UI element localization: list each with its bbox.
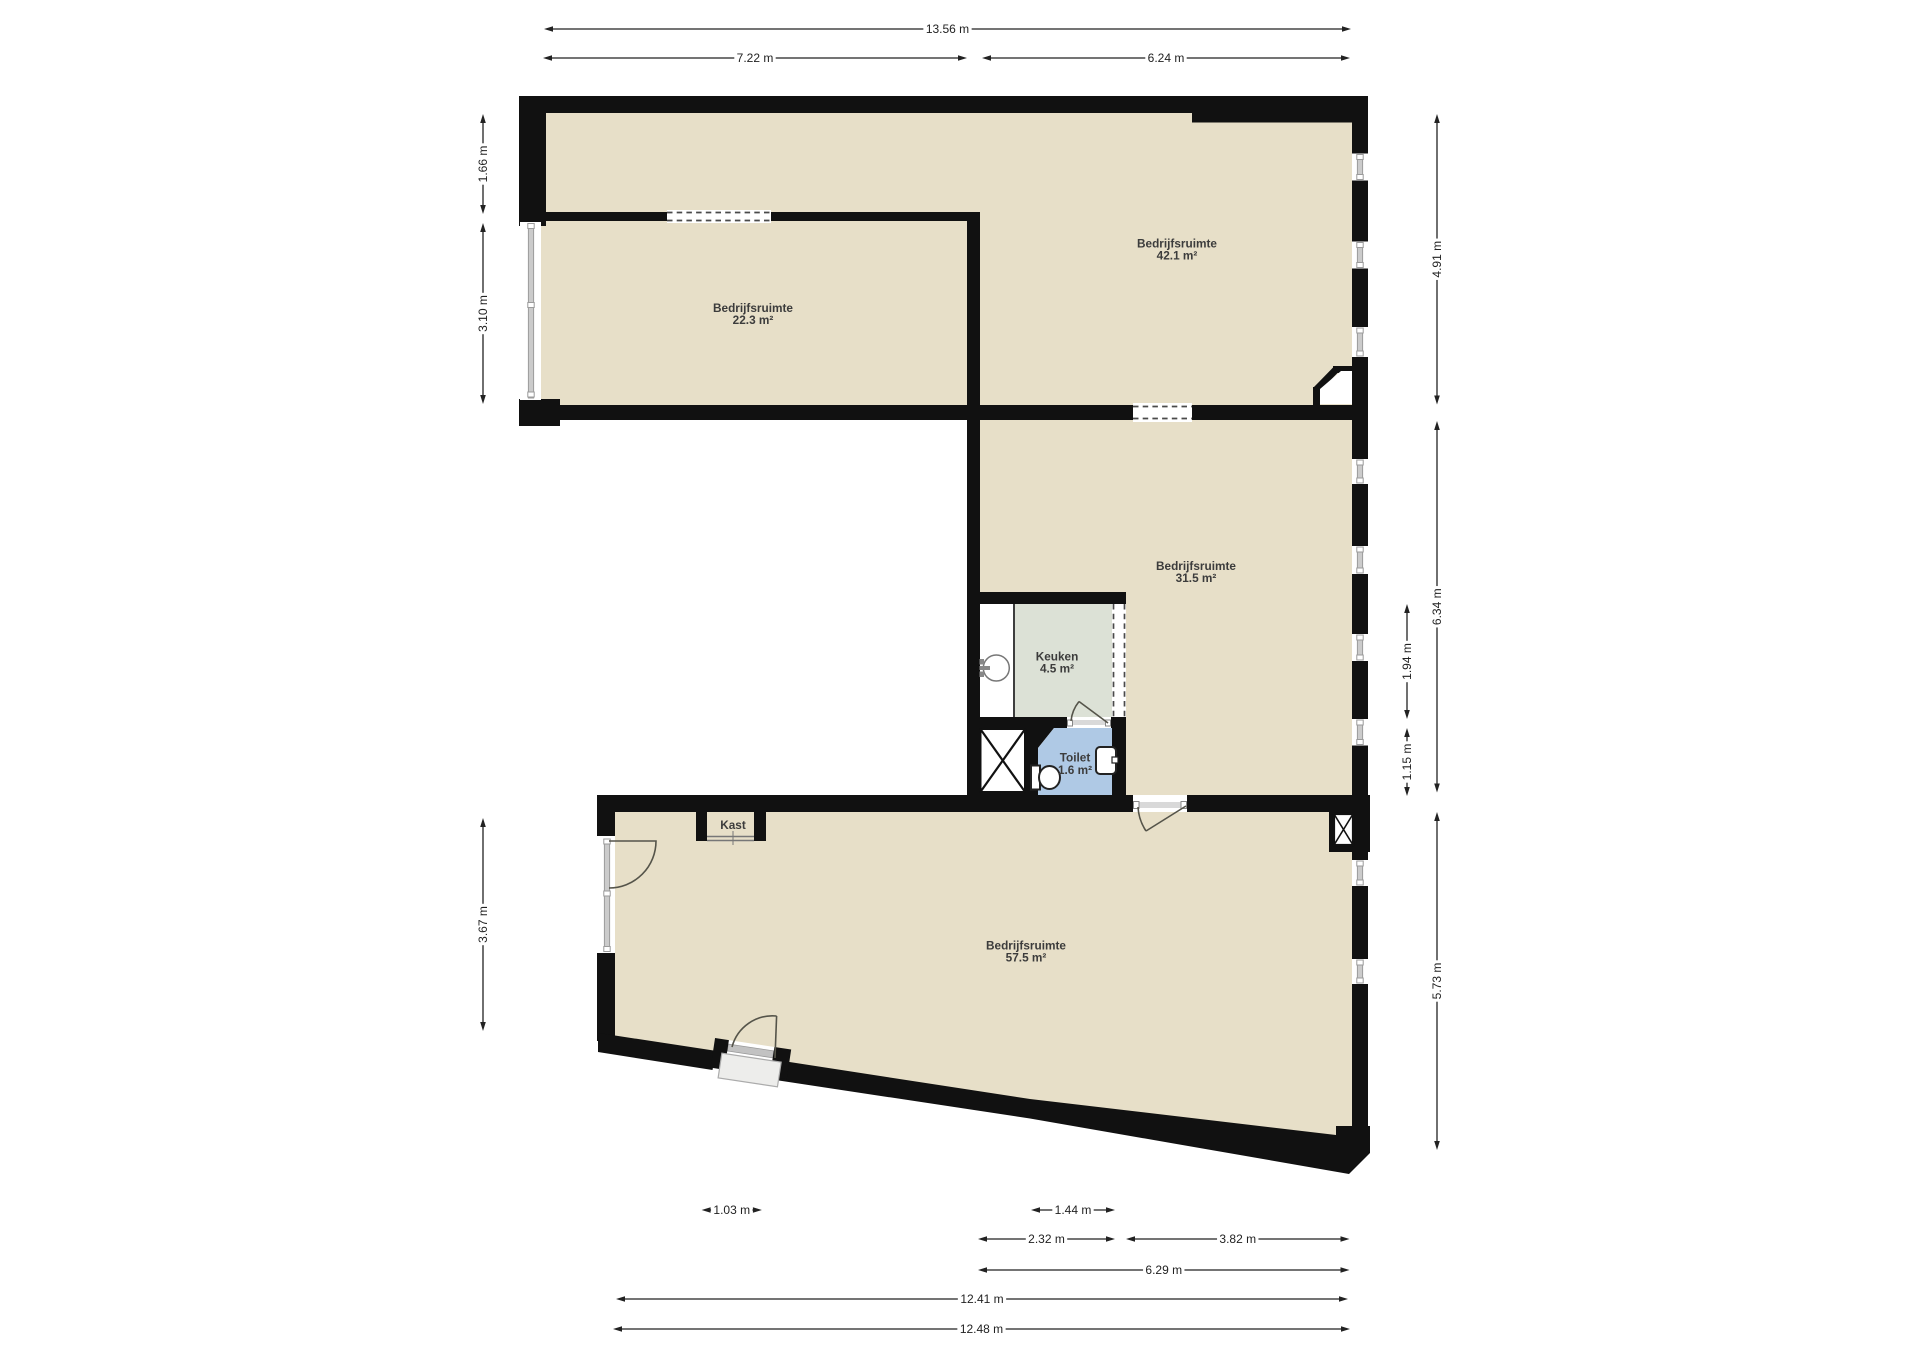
svg-text:3.10 m: 3.10 m (476, 295, 490, 332)
svg-text:13.56 m: 13.56 m (926, 22, 969, 36)
svg-text:57.5 m²: 57.5 m² (1006, 951, 1047, 965)
svg-text:12.41 m: 12.41 m (960, 1292, 1003, 1306)
svg-text:6.29 m: 6.29 m (1145, 1263, 1182, 1277)
svg-text:6.24 m: 6.24 m (1148, 51, 1185, 65)
svg-text:1.15 m: 1.15 m (1400, 744, 1414, 781)
svg-text:1.6 m²: 1.6 m² (1058, 763, 1092, 777)
svg-text:Kast: Kast (720, 818, 746, 832)
svg-text:1.66 m: 1.66 m (476, 146, 490, 183)
svg-text:5.73 m: 5.73 m (1430, 963, 1444, 1000)
svg-text:1.94 m: 1.94 m (1400, 643, 1414, 680)
svg-text:3.67 m: 3.67 m (476, 906, 490, 943)
svg-text:2.32 m: 2.32 m (1028, 1232, 1065, 1246)
svg-text:3.82 m: 3.82 m (1219, 1232, 1256, 1246)
svg-text:31.5 m²: 31.5 m² (1176, 571, 1217, 585)
svg-text:6.34 m: 6.34 m (1430, 588, 1444, 625)
svg-text:42.1 m²: 42.1 m² (1157, 249, 1198, 263)
svg-text:1.44 m: 1.44 m (1055, 1203, 1092, 1217)
svg-text:4.91 m: 4.91 m (1430, 241, 1444, 278)
svg-text:12.48 m: 12.48 m (960, 1322, 1003, 1336)
svg-text:7.22 m: 7.22 m (737, 51, 774, 65)
svg-text:4.5 m²: 4.5 m² (1040, 662, 1074, 676)
svg-text:22.3 m²: 22.3 m² (733, 313, 774, 327)
svg-text:1.03 m: 1.03 m (713, 1203, 750, 1217)
